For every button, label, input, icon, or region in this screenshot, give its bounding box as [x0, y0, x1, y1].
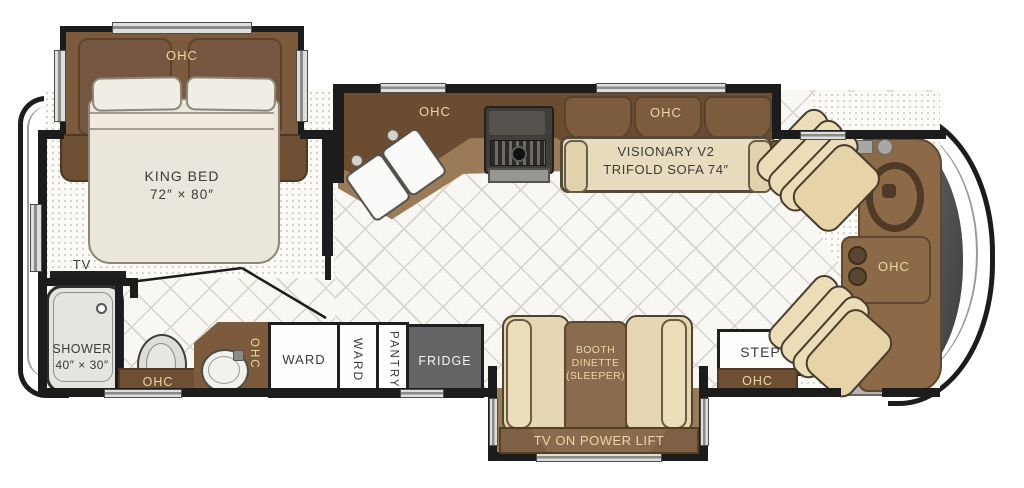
- stove-drawer: [488, 168, 550, 183]
- kitchen-ohc-label: OHC: [402, 104, 468, 120]
- cockpit-window: [800, 131, 846, 140]
- bedroom-right-wall: [322, 130, 333, 256]
- sofa-back-cushion-1: [564, 96, 632, 140]
- sofa-name: VISIONARY V2: [580, 144, 752, 160]
- fridge-label: FRIDGE: [418, 354, 471, 369]
- vanity-ohc-label: OHC: [246, 333, 260, 375]
- dinette-line1: BOOTH: [560, 344, 631, 357]
- tv-power-lift-label: TV ON POWER LIFT: [506, 433, 692, 449]
- dinette-window-bottom: [536, 453, 662, 462]
- ward-closet-1: WARD: [268, 322, 340, 398]
- sofa-window: [596, 83, 726, 93]
- dinette-bench-right-back: [661, 319, 687, 429]
- ward1-label: WARD: [282, 352, 325, 368]
- rv-floorplan: OHC KING BED 72″ × 80″ TV SHOWER 40″ × 3…: [0, 0, 1024, 488]
- stove-knob: [511, 146, 527, 162]
- ward-closet-2: WARD: [337, 322, 379, 398]
- vanity-faucet: [233, 350, 244, 361]
- shower-label: SHOWER 40″ × 30″: [47, 342, 117, 372]
- rear-window: [30, 204, 42, 272]
- dinette-window-left: [489, 398, 498, 446]
- dash-fan: [877, 139, 893, 155]
- bath-ohc-label: OHC: [143, 375, 174, 389]
- entry-ohc-label: OHC: [742, 374, 773, 388]
- dinette-bench-left-back: [506, 319, 532, 429]
- shower-drain: [96, 303, 107, 314]
- sofa-type: TRIFOLD SOFA 74″: [580, 162, 752, 178]
- dinette-line2: DINETTE: [560, 357, 631, 370]
- top-wall-cockpit: [772, 130, 946, 139]
- pocket-door-stub: [325, 256, 331, 280]
- shower-name: SHOWER: [47, 342, 117, 357]
- sofa-label: VISIONARY V2 TRIFOLD SOFA 74″: [580, 144, 752, 177]
- dinette-line3: (SLEEPER): [560, 370, 631, 383]
- dinette-label: BOOTH DINETTE (SLEEPER): [560, 344, 631, 383]
- kitchen-corner-wall: [333, 90, 344, 183]
- fridge: FRIDGE: [406, 324, 484, 398]
- fridge-window: [400, 389, 444, 398]
- cockpit-ohc-label: OHC: [864, 259, 924, 275]
- stove-top-panel: [489, 111, 545, 135]
- sofa-ohc-label: OHC: [636, 105, 696, 121]
- kitchen-window: [380, 83, 446, 93]
- sofa-back-cushion-3: [704, 96, 772, 140]
- shower-size: 40″ × 30″: [47, 358, 117, 372]
- ward2-label: WARD: [351, 338, 365, 382]
- pantry-label: PANTRY: [386, 331, 400, 389]
- dinette-window-right: [700, 398, 709, 446]
- steering-wheel-hub: [882, 184, 896, 198]
- bottom-wall-mid: [699, 388, 841, 397]
- bottom-wall-right: [882, 388, 940, 397]
- pantry: PANTRY: [376, 322, 409, 398]
- bath-window: [104, 389, 182, 398]
